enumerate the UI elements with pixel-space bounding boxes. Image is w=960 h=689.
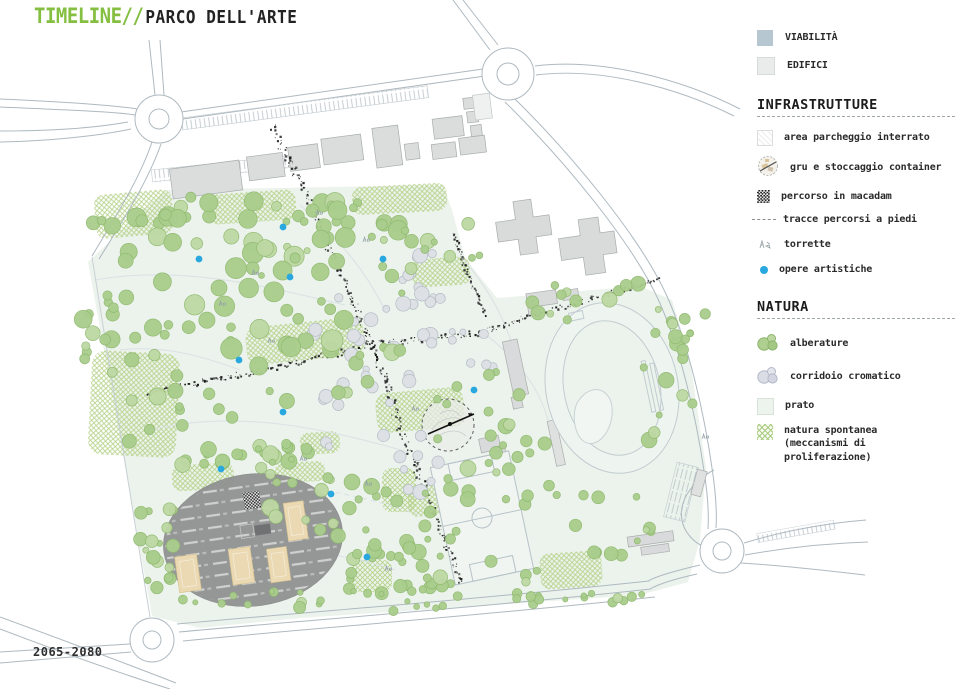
legend-item-buildings: EDIFICI [757, 57, 957, 75]
chromatic-corridor-icon [757, 365, 779, 389]
legend-item-trees: alberature [757, 332, 957, 356]
roundabout-top-right [482, 48, 534, 100]
roundabout-south-east [700, 529, 744, 573]
artwork-dot-icon [760, 266, 768, 274]
masterplan-poster: TIMELINE// PARCO DELL'ARTE VIABILITÀ EDI… [0, 0, 960, 689]
dashed-separator [757, 116, 955, 117]
viability-label: VIABILITÀ [785, 31, 837, 45]
footpath-dash-icon [752, 219, 776, 220]
viability-swatch [757, 30, 773, 46]
macadam-patch [242, 491, 261, 510]
macadam-swatch [757, 190, 770, 203]
lawn-swatch [757, 398, 774, 415]
legend-item-crane-containers: gru e stoccaggio container [757, 155, 957, 181]
legend-item-macadam: percorso in macadam [757, 190, 957, 204]
page-title: TIMELINE// PARCO DELL'ARTE [34, 4, 297, 29]
title-subtitle: PARCO DELL'ARTE [145, 6, 297, 27]
buildings-label: EDIFICI [787, 59, 828, 73]
section-title-nature: NATURA [757, 299, 957, 315]
tower-icon [757, 235, 773, 254]
crane-container-icon [757, 155, 779, 181]
legend-item-viability: VIABILITÀ [757, 30, 957, 46]
legend-item-lawn: prato [757, 398, 957, 415]
spontaneous-nature-swatch [757, 424, 773, 440]
legend-item-footpaths: tracce percorsi a piedi [757, 213, 957, 227]
roundabout-south-west [130, 618, 174, 662]
section-title-infrastructures: INFRASTRUTTURE [757, 97, 957, 113]
roundabout-top-left [135, 95, 183, 143]
legend-item-underground-parking: area parcheggio interrato [757, 130, 957, 146]
legend-panel: VIABILITÀ EDIFICI INFRASTRUTTURE area pa… [757, 30, 957, 473]
underground-parking-swatch [757, 130, 773, 146]
legend-item-towers: torrette [757, 235, 957, 254]
buildings-swatch [757, 57, 775, 75]
legend-item-chromatic-corridor: corridoio cromatico [757, 365, 957, 389]
buildings-north-block [426, 93, 497, 159]
legend-item-artworks: opere artistiche [757, 263, 957, 277]
title-brand: TIMELINE// [34, 4, 143, 29]
timeline-years: 2065-2080 [33, 645, 103, 659]
dashed-separator [757, 318, 955, 319]
legend-item-spontaneous-nature: natura spontanea (meccanismi di prolifer… [757, 424, 957, 465]
trees-icon [757, 332, 779, 356]
